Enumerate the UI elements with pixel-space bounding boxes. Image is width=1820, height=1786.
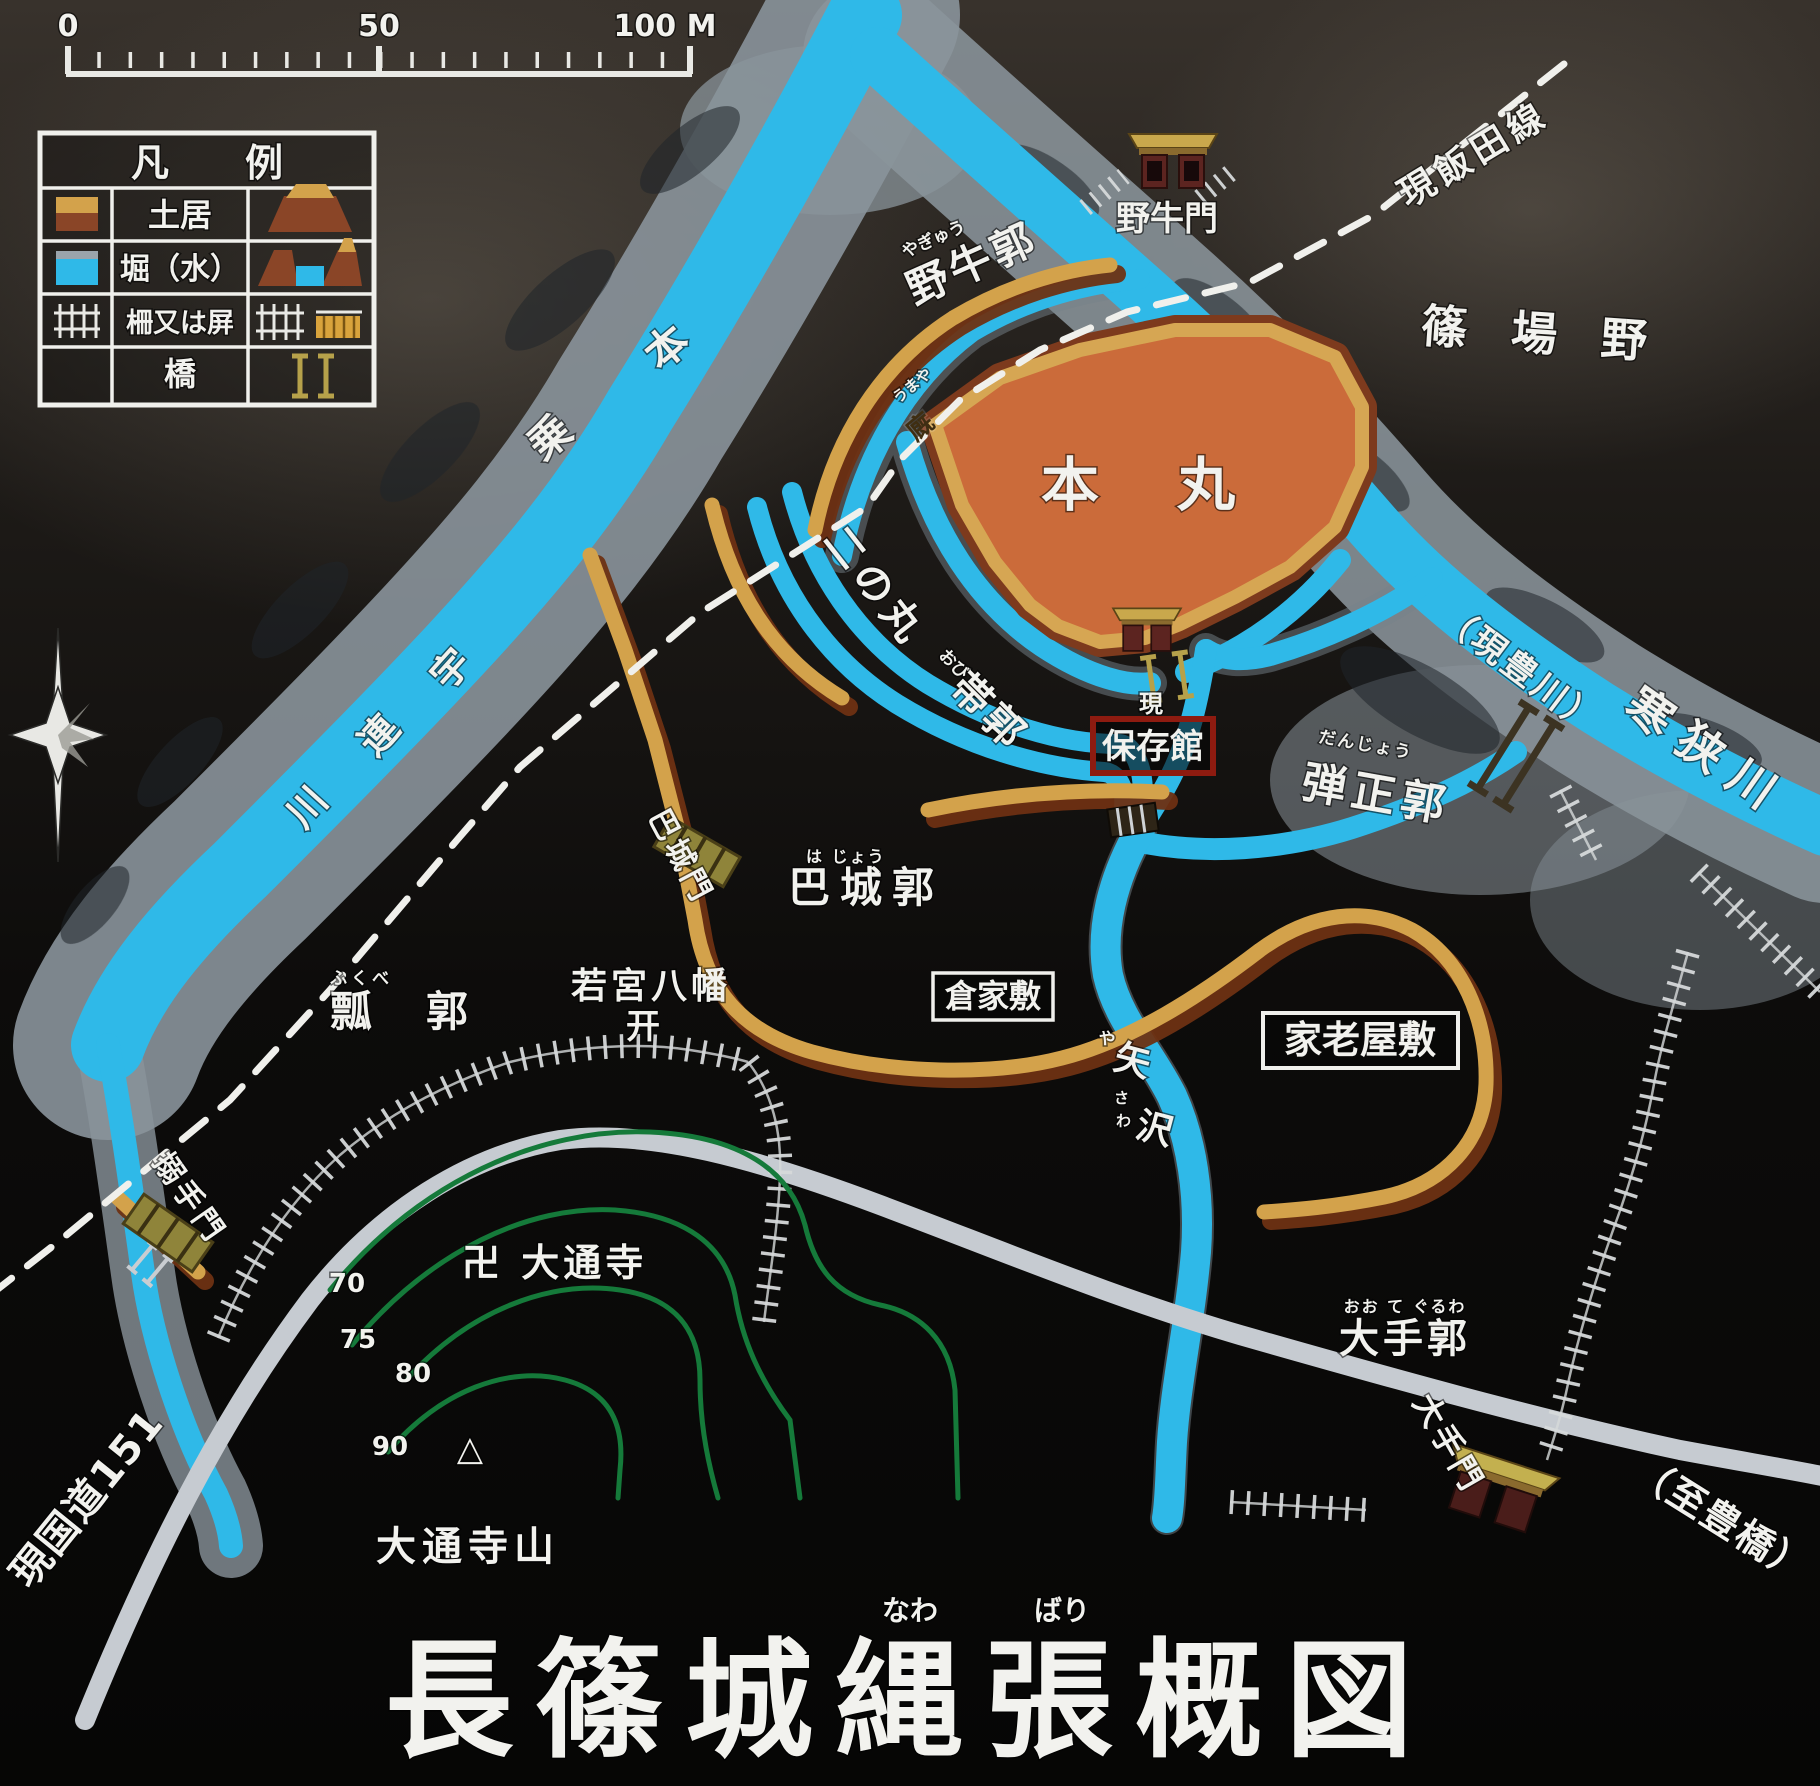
gate-roof <box>1129 134 1217 148</box>
gate-pillar <box>1123 625 1143 651</box>
label-daitsujiyama: 大通寺山 <box>376 1524 560 1570</box>
legend: 凡 例 土居 堀（水） 柵又は屏 橋 <box>40 133 374 405</box>
furigana-wa: わ <box>1116 1112 1131 1130</box>
contour-label-80: 80 <box>395 1359 431 1389</box>
gate-window <box>1147 161 1162 181</box>
scale-0: 0 <box>58 9 79 44</box>
furigana-ote: おお て ぐるわ <box>1344 1297 1467 1316</box>
title-furigana-bari: ばり <box>1034 1594 1090 1627</box>
furigana-fukube: ふくべ <box>330 969 393 989</box>
label-yagyumon: 野牛門 <box>1116 199 1218 239</box>
label-fukube-kuruwa: 瓢 郭 <box>330 987 474 1036</box>
label-hajo-kuruwa: 巴城郭 <box>788 863 944 912</box>
swatch-tan <box>56 197 98 213</box>
legend-label-doi: 土居 <box>148 196 212 234</box>
swatch-brown <box>56 213 98 231</box>
obi-small-gate-icon <box>1107 803 1158 837</box>
scale-50: 50 <box>358 9 400 44</box>
swatch-graytop <box>56 251 98 259</box>
legend-label-hori: 堀（水） <box>120 252 240 287</box>
legend-label-saku: 柵又は屏 <box>126 308 234 339</box>
label-daitsuji: 卍 大通寺 <box>462 1241 647 1285</box>
swatch-water <box>56 259 98 285</box>
label-gen: 現 <box>1139 690 1163 718</box>
contour-label-70: 70 <box>329 1269 365 1299</box>
contour-label-90: 90 <box>372 1432 408 1462</box>
castle-map-sign: 0 50 100 M 凡 例 土居 堀（水） 柵又は屏 橋 <box>0 0 1820 1786</box>
label-kurayashiki: 倉家敷 <box>944 977 1041 1015</box>
label-honmaru: 本 丸 <box>1041 451 1245 519</box>
legend-swatch-doi <box>56 197 98 231</box>
label-wakamiya: 若宮八幡 <box>571 966 731 1007</box>
title-text: 長篠城縄張概図 <box>385 1627 1435 1776</box>
map-canvas: 0 50 100 M 凡 例 土居 堀（水） 柵又は屏 橋 <box>0 0 1820 1786</box>
label-karoyashiki: 家老屋敷 <box>1284 1018 1436 1062</box>
furigana-sa: さ <box>1114 1089 1129 1107</box>
gate-eave <box>1139 148 1207 155</box>
gate-window <box>1184 161 1199 181</box>
label-ote-kuruwa: 大手郭 <box>1339 1316 1471 1362</box>
legend-label-hashi: 橋 <box>164 355 197 393</box>
gate-pillar <box>1151 625 1171 651</box>
title-furigana-nawa: なわ <box>882 1594 938 1627</box>
legend-swatch-hori <box>56 251 98 285</box>
pict-water <box>296 266 324 286</box>
legend-header: 凡 例 <box>131 141 283 185</box>
label-hozonkan: 保存館 <box>1102 727 1204 767</box>
torii-symbol: 开 <box>626 1007 660 1047</box>
scale-100m: 100 M <box>614 9 717 44</box>
contour-label-75: 75 <box>340 1325 376 1355</box>
gate-roof <box>1113 608 1181 620</box>
summit-triangle: △ <box>457 1429 484 1469</box>
